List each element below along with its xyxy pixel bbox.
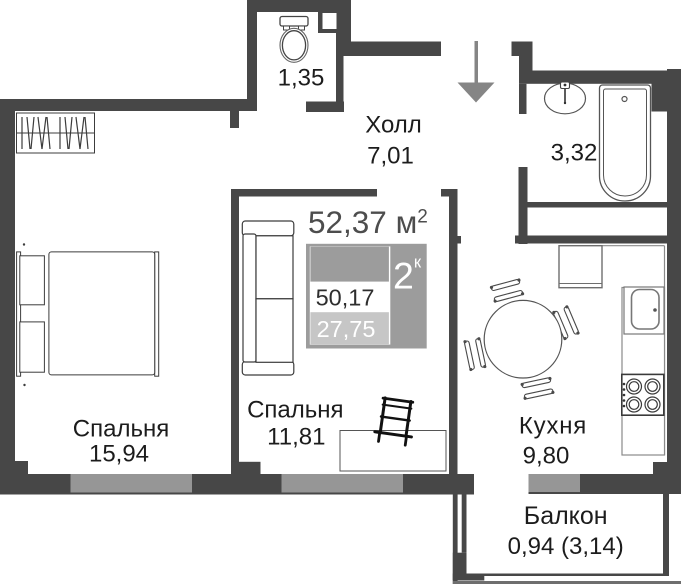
svg-text:7,01: 7,01 — [367, 143, 414, 170]
svg-text:50,17: 50,17 — [316, 285, 375, 311]
svg-text:52,37 м2: 52,37 м2 — [308, 204, 428, 240]
svg-text:27,75: 27,75 — [317, 316, 376, 342]
svg-text:11,81: 11,81 — [267, 424, 325, 451]
svg-text:9,80: 9,80 — [523, 443, 570, 470]
svg-text:1,35: 1,35 — [278, 65, 325, 92]
svg-text:0,94 (3,14): 0,94 (3,14) — [508, 533, 624, 560]
svg-text:Холл: Холл — [365, 112, 422, 139]
svg-text:Спальня: Спальня — [247, 397, 343, 424]
svg-text:Балкон: Балкон — [524, 502, 608, 530]
svg-text:Спальня: Спальня — [73, 416, 169, 443]
svg-text:3,32: 3,32 — [551, 140, 598, 167]
svg-text:Кухня: Кухня — [519, 413, 587, 440]
svg-text:15,94: 15,94 — [89, 441, 149, 468]
